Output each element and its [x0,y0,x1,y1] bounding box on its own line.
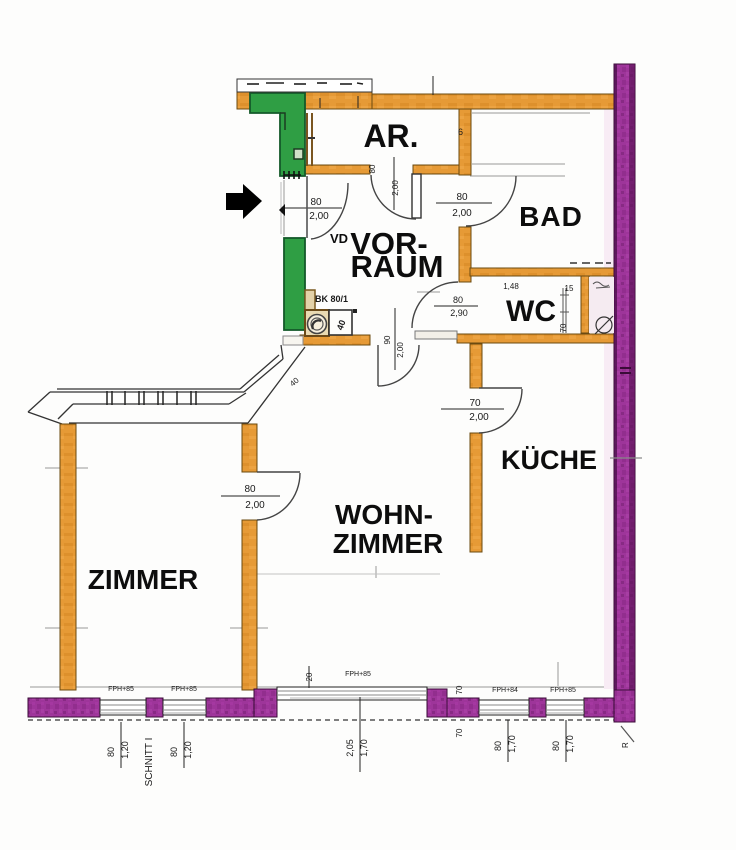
svg-text:20: 20 [305,672,314,681]
svg-text:70: 70 [455,728,464,737]
svg-text:FPH+85: FPH+85 [108,686,134,693]
svg-text:WC: WC [506,295,556,328]
svg-text:FPH+85: FPH+85 [171,686,197,693]
svg-text:2,00: 2,00 [245,500,265,511]
svg-text:ZIMMER: ZIMMER [88,564,198,595]
svg-text:KÜCHE: KÜCHE [501,445,597,475]
svg-text:1,70: 1,70 [359,739,369,757]
svg-text:BK 80/1: BK 80/1 [315,294,348,304]
svg-text:80: 80 [493,741,503,751]
svg-text:2,00: 2,00 [396,342,405,358]
svg-text:SCHNITT I: SCHNITT I [144,738,155,787]
svg-text:RAUM: RAUM [351,249,444,284]
svg-text:1,70: 1,70 [507,735,517,753]
svg-text:70: 70 [469,398,481,409]
svg-text:2,00: 2,00 [309,211,329,222]
svg-text:2,05: 2,05 [345,739,355,757]
svg-text:1,20: 1,20 [120,741,130,759]
svg-text:FPH+85: FPH+85 [550,687,576,694]
svg-text:80: 80 [244,484,256,495]
svg-text:15: 15 [565,284,574,293]
svg-text:80: 80 [169,747,179,757]
svg-text:90: 90 [383,335,392,344]
svg-text:80: 80 [456,192,468,203]
svg-text:2,00: 2,00 [469,412,489,423]
svg-text:R: R [621,742,630,748]
svg-text:2,00: 2,00 [452,208,472,219]
svg-text:1,70: 1,70 [565,735,575,753]
svg-text:2,00: 2,00 [391,180,400,196]
svg-text:1,48: 1,48 [503,282,519,291]
svg-text:FPH+85: FPH+85 [345,671,371,678]
svg-text:80: 80 [551,741,561,751]
svg-text:6: 6 [458,127,463,137]
svg-text:80: 80 [453,295,463,305]
svg-text:80: 80 [310,197,322,208]
svg-text:FPH+84: FPH+84 [492,687,518,694]
svg-text:1,20: 1,20 [183,741,193,759]
svg-text:80: 80 [106,747,116,757]
svg-text:2,90: 2,90 [450,308,468,318]
svg-text:70: 70 [455,685,464,694]
svg-text:80: 80 [368,164,377,173]
svg-text:WOHN-: WOHN- [335,499,433,530]
svg-text:ZIMMER: ZIMMER [333,528,443,559]
svg-text:VD: VD [330,231,348,246]
svg-text:AR.: AR. [363,118,418,154]
svg-text:BAD: BAD [519,201,583,232]
svg-text:70: 70 [559,323,568,332]
